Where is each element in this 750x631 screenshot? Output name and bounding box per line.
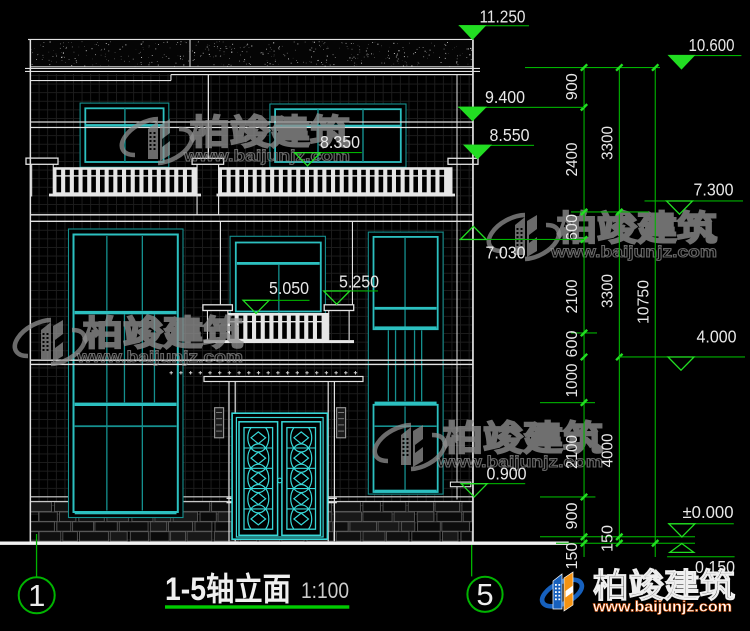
svg-text:1: 1 [28, 578, 45, 613]
svg-text:1000: 1000 [564, 363, 581, 397]
svg-text:www.baijunjz.com: www.baijunjz.com [592, 600, 732, 616]
svg-text:0.900: 0.900 [487, 464, 527, 484]
svg-text:±0.000: ±0.000 [683, 502, 734, 522]
svg-text:600: 600 [564, 214, 581, 241]
svg-text:1:100: 1:100 [301, 578, 349, 603]
svg-text:600: 600 [564, 330, 581, 357]
svg-text:9.400: 9.400 [485, 87, 525, 107]
svg-text:150: 150 [600, 525, 617, 552]
svg-text:2100: 2100 [564, 279, 581, 313]
svg-text:www.baijunjz.com: www.baijunjz.com [550, 244, 717, 261]
svg-text:11.250: 11.250 [480, 7, 526, 27]
svg-text:8.550: 8.550 [490, 125, 530, 145]
svg-text:柏竣建筑: 柏竣建筑 [593, 567, 735, 604]
svg-text:5.050: 5.050 [269, 278, 309, 298]
svg-text:www.baijunjz.com: www.baijunjz.com [76, 349, 243, 366]
svg-text:8.350: 8.350 [320, 132, 360, 152]
svg-text:2400: 2400 [564, 142, 581, 176]
svg-text:7.300: 7.300 [694, 180, 734, 200]
svg-text:3300: 3300 [600, 126, 617, 160]
svg-text:900: 900 [564, 502, 581, 529]
svg-text:10.600: 10.600 [689, 35, 735, 55]
svg-text:4.000: 4.000 [697, 327, 737, 347]
svg-text:150: 150 [564, 542, 581, 569]
svg-text:2100: 2100 [564, 435, 581, 469]
svg-text:900: 900 [564, 73, 581, 100]
svg-text:5.250: 5.250 [339, 272, 379, 292]
svg-text:5: 5 [476, 577, 493, 612]
svg-text:3300: 3300 [600, 274, 617, 308]
svg-text:4000: 4000 [600, 433, 617, 467]
svg-text:柏竣建筑: 柏竣建筑 [83, 314, 243, 353]
svg-text:10750: 10750 [636, 280, 653, 324]
svg-text:7.030: 7.030 [486, 243, 526, 263]
svg-text:1-5轴立面: 1-5轴立面 [165, 571, 291, 607]
